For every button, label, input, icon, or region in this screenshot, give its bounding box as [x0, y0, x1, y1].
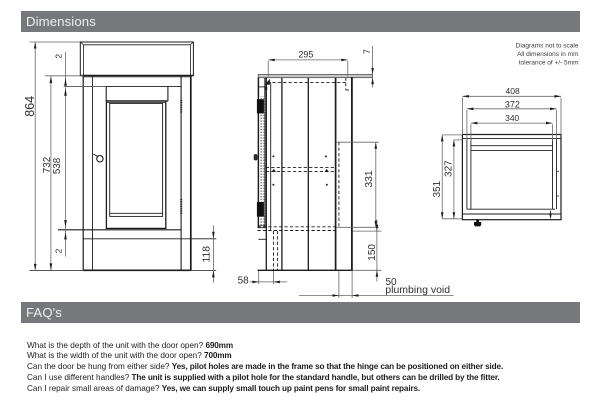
svg-text:340: 340 — [505, 113, 519, 123]
svg-text:2: 2 — [54, 248, 64, 253]
svg-text:351: 351 — [432, 180, 443, 197]
svg-text:331: 331 — [364, 170, 375, 188]
svg-text:295: 295 — [298, 50, 313, 60]
svg-text:732: 732 — [42, 157, 53, 173]
svg-text:plumbing void: plumbing void — [385, 284, 450, 296]
svg-text:2: 2 — [53, 54, 63, 59]
svg-text:538: 538 — [52, 157, 63, 174]
svg-text:Diagrams not to scale: Diagrams not to scale — [516, 43, 579, 50]
svg-text:58: 58 — [238, 276, 250, 287]
svg-text:All dimensions in mm: All dimensions in mm — [517, 51, 578, 58]
svg-text:408: 408 — [506, 86, 520, 96]
svg-text:864: 864 — [23, 96, 37, 117]
svg-text:372: 372 — [505, 99, 520, 109]
svg-text:118: 118 — [201, 246, 212, 263]
svg-text:tolerance of +/- 5mm: tolerance of +/- 5mm — [519, 60, 579, 67]
svg-text:7: 7 — [362, 49, 372, 54]
svg-text:150: 150 — [367, 244, 378, 261]
svg-text:327: 327 — [444, 160, 455, 177]
